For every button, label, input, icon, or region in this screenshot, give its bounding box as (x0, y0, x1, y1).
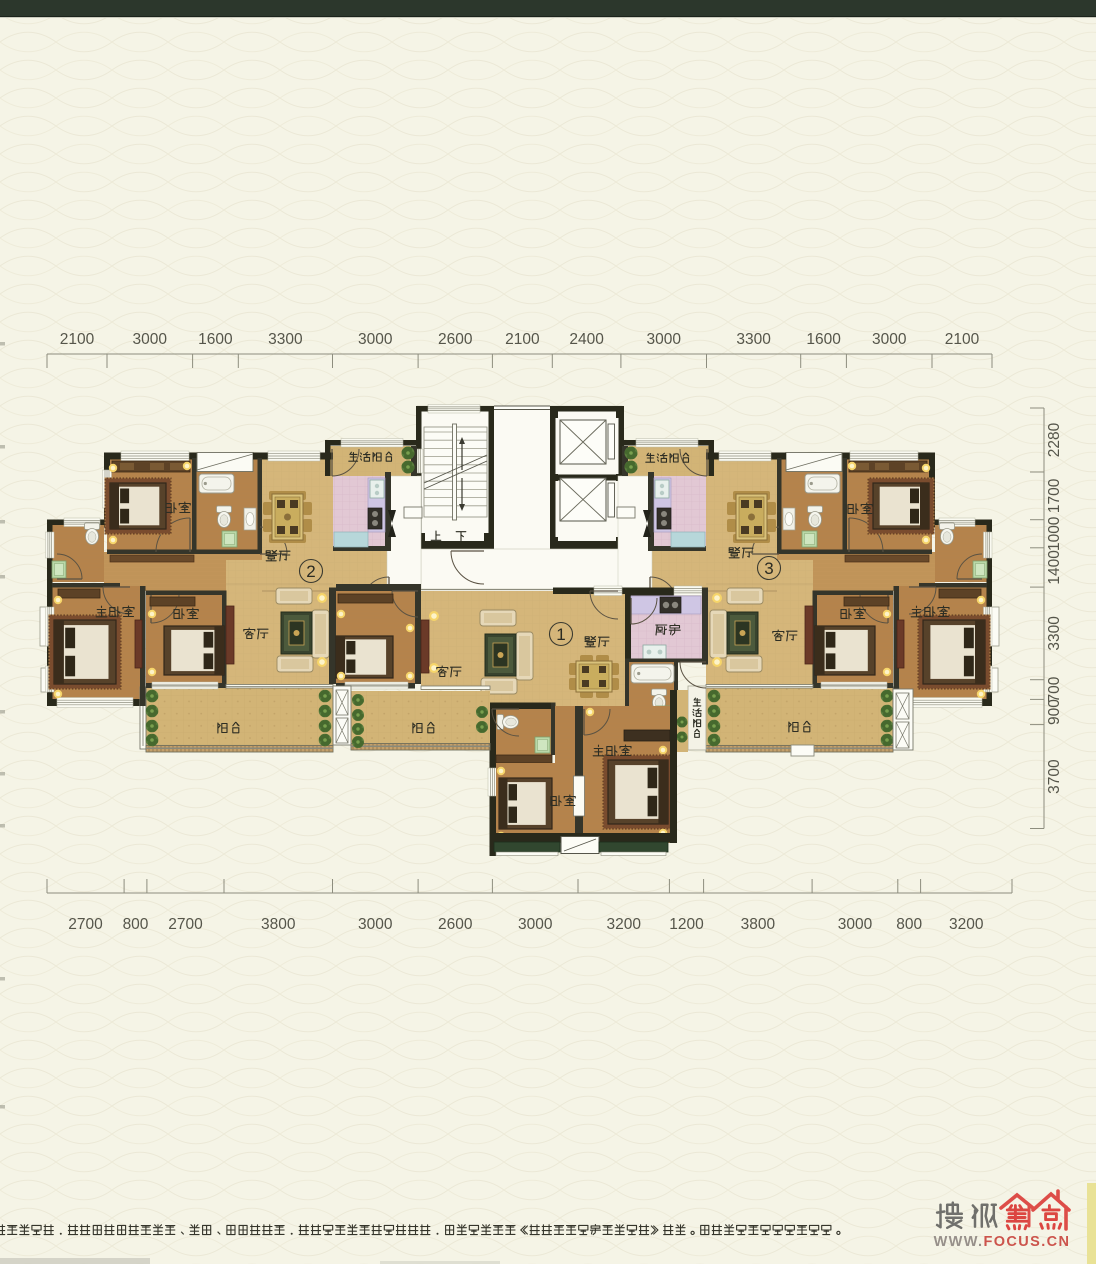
svg-text:2: 2 (306, 562, 315, 581)
svg-text:3000: 3000 (646, 331, 681, 348)
svg-text:1600: 1600 (198, 331, 233, 348)
svg-text:1000: 1000 (1046, 516, 1063, 551)
svg-text:3000: 3000 (872, 331, 907, 348)
svg-text:2400: 2400 (569, 331, 604, 348)
svg-text:3200: 3200 (949, 916, 984, 933)
svg-text:1400: 1400 (1046, 550, 1063, 585)
svg-text:3200: 3200 (606, 916, 641, 933)
svg-text:3300: 3300 (1046, 616, 1063, 651)
svg-text:3700: 3700 (1046, 759, 1063, 794)
svg-text:2280: 2280 (1046, 422, 1063, 457)
svg-text:3000: 3000 (358, 916, 393, 933)
svg-text:WWW.FOCUS.CN: WWW.FOCUS.CN (934, 1234, 1071, 1250)
svg-text:2700: 2700 (68, 916, 103, 933)
svg-text:2100: 2100 (60, 331, 95, 348)
svg-text:3800: 3800 (261, 916, 296, 933)
svg-text:3000: 3000 (518, 916, 553, 933)
svg-text:1700: 1700 (1046, 478, 1063, 513)
svg-text:1: 1 (556, 625, 565, 644)
svg-text:1600: 1600 (806, 331, 841, 348)
svg-text:2600: 2600 (438, 331, 473, 348)
svg-text:3300: 3300 (736, 331, 771, 348)
svg-text:2600: 2600 (438, 916, 473, 933)
svg-text:1200: 1200 (669, 916, 704, 933)
svg-text:900: 900 (1046, 699, 1063, 725)
svg-text:3000: 3000 (358, 331, 393, 348)
svg-text:3300: 3300 (268, 331, 303, 348)
svg-text:2100: 2100 (945, 331, 980, 348)
svg-text:800: 800 (123, 916, 149, 933)
svg-text:3000: 3000 (133, 331, 168, 348)
svg-text:2100: 2100 (505, 331, 540, 348)
svg-text:3000: 3000 (838, 916, 873, 933)
svg-text:800: 800 (896, 916, 922, 933)
svg-text:3: 3 (764, 559, 773, 578)
svg-text:2700: 2700 (168, 916, 203, 933)
svg-text:700: 700 (1046, 676, 1063, 702)
svg-text:3800: 3800 (741, 916, 776, 933)
